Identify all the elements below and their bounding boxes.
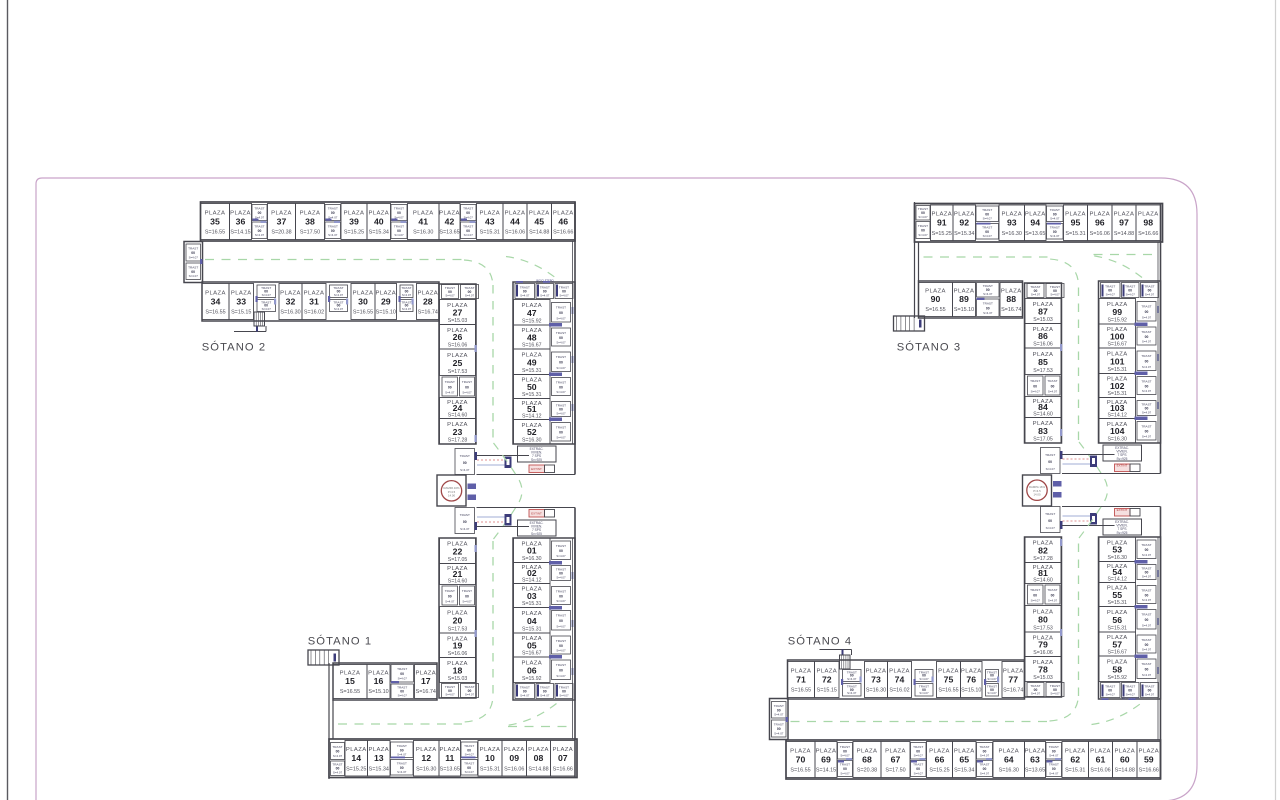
svg-text:EXTINT: EXTINT bbox=[1117, 464, 1128, 468]
svg-text:S=16.74: S=16.74 bbox=[416, 689, 436, 695]
svg-text:S=4.07: S=4.07 bbox=[556, 316, 566, 320]
svg-text:S=4.07: S=4.07 bbox=[465, 770, 475, 774]
svg-text:PLAZA: PLAZA bbox=[1138, 748, 1159, 754]
svg-text:S=4.07: S=4.07 bbox=[1142, 315, 1152, 319]
svg-text:TRAST: TRAST bbox=[1141, 662, 1151, 666]
svg-text:17: 17 bbox=[421, 676, 431, 686]
svg-text:S=4.07: S=4.07 bbox=[1050, 692, 1060, 696]
svg-text:S=4.07: S=4.07 bbox=[334, 293, 344, 297]
svg-text:S=4.07: S=4.07 bbox=[1046, 526, 1056, 530]
svg-text:00: 00 bbox=[1051, 593, 1055, 597]
svg-text:TRAST: TRAST bbox=[1141, 638, 1151, 642]
svg-text:PLAZA: PLAZA bbox=[417, 290, 438, 296]
svg-text:TRAST: TRAST bbox=[1141, 424, 1151, 428]
svg-text:81: 81 bbox=[1038, 568, 1048, 578]
svg-text:PLAZA: PLAZA bbox=[553, 210, 574, 216]
svg-text:23: 23 bbox=[453, 427, 463, 437]
svg-text:00: 00 bbox=[559, 549, 563, 553]
svg-text:99: 99 bbox=[1112, 307, 1122, 317]
svg-text:S=16.06: S=16.06 bbox=[505, 230, 525, 236]
svg-text:PLAZA: PLAZA bbox=[1025, 748, 1046, 754]
svg-text:93: 93 bbox=[1007, 218, 1017, 228]
svg-text:76: 76 bbox=[966, 674, 976, 684]
svg-text:S=17.05: S=17.05 bbox=[448, 557, 468, 563]
svg-text:S=15.25: S=15.25 bbox=[346, 766, 366, 772]
svg-text:59: 59 bbox=[1144, 754, 1154, 764]
svg-text:S=4.07: S=4.07 bbox=[1142, 673, 1152, 677]
svg-text:S=4.07: S=4.07 bbox=[556, 366, 566, 370]
svg-text:S=15.15: S=15.15 bbox=[231, 310, 251, 316]
svg-text:00: 00 bbox=[1048, 460, 1052, 464]
svg-text:S=4.07: S=4.07 bbox=[1142, 623, 1152, 627]
svg-text:S=16.02: S=16.02 bbox=[304, 310, 324, 316]
svg-text:S=16.67: S=16.67 bbox=[1107, 342, 1127, 348]
svg-text:SÓTANO 2: SÓTANO 2 bbox=[202, 341, 267, 354]
svg-text:S=4.07: S=4.07 bbox=[983, 292, 993, 296]
svg-text:S=4.07: S=4.07 bbox=[980, 754, 990, 758]
svg-text:S=15.34: S=15.34 bbox=[954, 768, 974, 774]
svg-text:00: 00 bbox=[465, 385, 469, 389]
svg-text:S=4.07: S=4.07 bbox=[983, 311, 993, 315]
svg-text:37: 37 bbox=[277, 216, 287, 226]
svg-text:65: 65 bbox=[959, 754, 969, 764]
svg-text:92: 92 bbox=[959, 218, 969, 228]
svg-text:00: 00 bbox=[1145, 384, 1149, 388]
svg-text:TRAST: TRAST bbox=[394, 207, 404, 211]
svg-text:TRAST: TRAST bbox=[556, 589, 566, 593]
svg-text:95: 95 bbox=[1071, 218, 1081, 228]
svg-text:26: 26 bbox=[453, 332, 463, 342]
svg-text:07: 07 bbox=[558, 753, 568, 763]
svg-text:08: 08 bbox=[534, 753, 544, 763]
svg-text:89: 89 bbox=[959, 294, 969, 304]
svg-text:TRAST: TRAST bbox=[460, 454, 470, 458]
svg-text:38: 38 bbox=[305, 216, 315, 226]
svg-text:TRAST: TRAST bbox=[840, 763, 850, 767]
svg-text:S=4.07: S=4.07 bbox=[1050, 216, 1060, 220]
svg-text:06: 06 bbox=[527, 665, 537, 675]
svg-text:S=20.38: S=20.38 bbox=[857, 768, 877, 774]
svg-text:S=14.15: S=14.15 bbox=[230, 230, 250, 236]
svg-text:TRAST: TRAST bbox=[254, 224, 264, 228]
svg-text:S=16.30: S=16.30 bbox=[999, 768, 1019, 774]
svg-text:100: 100 bbox=[1110, 331, 1125, 341]
svg-text:Sv=925: Sv=925 bbox=[1117, 457, 1128, 461]
svg-text:94: 94 bbox=[1030, 218, 1040, 228]
svg-text:S=17.53: S=17.53 bbox=[1033, 368, 1053, 374]
svg-text:S=16.74: S=16.74 bbox=[418, 310, 438, 316]
svg-text:S=14.12: S=14.12 bbox=[522, 577, 542, 583]
svg-text:S=16.74: S=16.74 bbox=[1003, 688, 1023, 694]
svg-text:22: 22 bbox=[453, 546, 463, 556]
svg-text:40: 40 bbox=[374, 216, 384, 226]
svg-text:88: 88 bbox=[1006, 294, 1016, 304]
svg-text:84: 84 bbox=[1038, 402, 1048, 412]
svg-text:TRAST: TRAST bbox=[188, 265, 198, 269]
svg-text:TRAST: TRAST bbox=[774, 704, 784, 708]
svg-text:PLAZA: PLAZA bbox=[205, 210, 226, 216]
svg-text:TRAST: TRAST bbox=[913, 763, 923, 767]
svg-text:S=4.07: S=4.07 bbox=[1142, 648, 1152, 652]
svg-text:S=15.92: S=15.92 bbox=[1107, 317, 1127, 323]
svg-text:TRAST: TRAST bbox=[254, 207, 264, 211]
svg-text:73: 73 bbox=[871, 674, 881, 684]
svg-text:TRAST: TRAST bbox=[460, 513, 470, 517]
svg-text:Sv=925: Sv=925 bbox=[531, 458, 542, 462]
svg-text:31: 31 bbox=[309, 296, 319, 306]
svg-text:20: 20 bbox=[453, 616, 463, 626]
svg-text:S=4.07: S=4.07 bbox=[1142, 434, 1152, 438]
svg-text:TRAST: TRAST bbox=[462, 589, 472, 593]
svg-text:00: 00 bbox=[559, 669, 563, 673]
svg-text:S=4.07: S=4.07 bbox=[559, 693, 569, 697]
svg-text:TRAST: TRAST bbox=[913, 745, 923, 749]
svg-text:S=15.31: S=15.31 bbox=[1065, 231, 1085, 237]
svg-text:S=17.28: S=17.28 bbox=[448, 437, 468, 443]
svg-text:S=4.07: S=4.07 bbox=[1050, 234, 1060, 238]
svg-text:S=4.07: S=4.07 bbox=[1126, 692, 1136, 696]
svg-text:S=4.07: S=4.07 bbox=[394, 233, 404, 237]
svg-text:S=4.07: S=4.07 bbox=[1142, 389, 1152, 393]
svg-text:00: 00 bbox=[1048, 519, 1052, 523]
svg-text:00: 00 bbox=[559, 361, 563, 365]
svg-text:34: 34 bbox=[211, 296, 221, 306]
svg-text:74: 74 bbox=[895, 674, 905, 684]
svg-text:S=4.07: S=4.07 bbox=[462, 390, 472, 394]
svg-text:PLAZA: PLAZA bbox=[280, 290, 301, 296]
svg-text:S=4.07: S=4.07 bbox=[333, 754, 343, 758]
svg-text:S=15.92: S=15.92 bbox=[1107, 675, 1127, 681]
svg-text:91: 91 bbox=[937, 218, 947, 228]
svg-text:62: 62 bbox=[1070, 754, 1080, 764]
svg-text:S=15.34: S=15.34 bbox=[369, 766, 389, 772]
svg-text:S=4.07: S=4.07 bbox=[1031, 389, 1041, 393]
svg-text:S=4.07: S=4.07 bbox=[462, 599, 472, 603]
svg-text:PLAZA: PLAZA bbox=[938, 668, 959, 674]
svg-text:S=14.15: S=14.15 bbox=[816, 768, 836, 774]
svg-text:S=4.07: S=4.07 bbox=[1048, 389, 1058, 393]
svg-text:00: 00 bbox=[191, 251, 195, 255]
svg-text:TRAST: TRAST bbox=[556, 639, 566, 643]
svg-text:S=16.55: S=16.55 bbox=[205, 230, 225, 236]
svg-text:S=4.07: S=4.07 bbox=[1145, 692, 1155, 696]
svg-text:PLAZA: PLAZA bbox=[954, 748, 975, 754]
svg-text:S=4.07: S=4.07 bbox=[918, 233, 928, 237]
svg-text:PLAZA: PLAZA bbox=[857, 748, 878, 754]
svg-text:S=4.07: S=4.07 bbox=[556, 674, 566, 678]
svg-text:TRAST: TRAST bbox=[394, 224, 404, 228]
svg-text:S=16.30: S=16.30 bbox=[866, 688, 886, 694]
svg-text:00: 00 bbox=[336, 750, 340, 754]
svg-text:S=17.50: S=17.50 bbox=[885, 768, 905, 774]
svg-text:TRAST: TRAST bbox=[188, 246, 198, 250]
svg-text:53: 53 bbox=[1112, 545, 1122, 555]
svg-text:104: 104 bbox=[1110, 426, 1125, 436]
svg-text:TRAST: TRAST bbox=[1141, 613, 1151, 617]
svg-text:13: 13 bbox=[374, 753, 384, 763]
svg-text:54: 54 bbox=[1112, 567, 1122, 577]
svg-text:14.00: 14.00 bbox=[1034, 493, 1041, 497]
svg-text:72: 72 bbox=[822, 674, 832, 684]
svg-text:S=16.06: S=16.06 bbox=[1033, 650, 1053, 656]
svg-text:S=14.88: S=14.88 bbox=[529, 230, 549, 236]
svg-text:68: 68 bbox=[862, 754, 872, 764]
svg-text:S=16.06: S=16.06 bbox=[1033, 342, 1053, 348]
svg-text:00: 00 bbox=[559, 385, 563, 389]
svg-text:S=4.07: S=4.07 bbox=[445, 390, 455, 394]
svg-text:TRAST: TRAST bbox=[445, 589, 455, 593]
svg-text:S=16.06: S=16.06 bbox=[448, 651, 468, 657]
svg-text:S=4.07: S=4.07 bbox=[914, 754, 924, 758]
svg-text:S=15.25: S=15.25 bbox=[932, 231, 952, 237]
svg-text:TRAST: TRAST bbox=[556, 544, 566, 548]
svg-text:S=17.53: S=17.53 bbox=[448, 369, 468, 375]
svg-text:PLAZA: PLAZA bbox=[413, 210, 434, 216]
svg-text:S=16.30: S=16.30 bbox=[522, 556, 542, 562]
svg-text:Sv=925: Sv=925 bbox=[1117, 531, 1128, 535]
svg-text:46: 46 bbox=[558, 216, 568, 226]
svg-text:S=14.60: S=14.60 bbox=[1033, 577, 1053, 583]
svg-text:S=4.07: S=4.07 bbox=[556, 411, 566, 415]
svg-text:78: 78 bbox=[1038, 665, 1048, 675]
svg-text:79: 79 bbox=[1038, 640, 1048, 650]
svg-text:SÓTANO 1: SÓTANO 1 bbox=[308, 635, 373, 648]
svg-text:15: 15 bbox=[345, 676, 355, 686]
svg-text:S=16.55: S=16.55 bbox=[790, 768, 810, 774]
svg-text:39: 39 bbox=[349, 216, 359, 226]
svg-text:00: 00 bbox=[559, 644, 563, 648]
svg-text:S=4.07: S=4.07 bbox=[1106, 692, 1116, 696]
svg-text:00: 00 bbox=[1145, 643, 1149, 647]
svg-text:49: 49 bbox=[527, 357, 537, 367]
svg-text:S=4.07: S=4.07 bbox=[847, 691, 857, 695]
svg-text:S=16.55: S=16.55 bbox=[791, 688, 811, 694]
svg-text:00: 00 bbox=[1145, 618, 1149, 622]
svg-text:00: 00 bbox=[463, 461, 467, 465]
svg-text:TRAST: TRAST bbox=[1141, 354, 1151, 358]
svg-text:67: 67 bbox=[891, 754, 901, 764]
svg-text:TRAST: TRAST bbox=[556, 614, 566, 618]
svg-text:S=15.10: S=15.10 bbox=[376, 310, 396, 316]
svg-text:TRAST: TRAST bbox=[328, 224, 338, 228]
svg-text:S=4.07: S=4.07 bbox=[189, 256, 199, 260]
svg-text:S=4.07: S=4.07 bbox=[1049, 771, 1059, 775]
svg-text:TRAST: TRAST bbox=[1030, 588, 1040, 592]
svg-text:TRAST: TRAST bbox=[397, 667, 407, 671]
svg-text:S=15.92: S=15.92 bbox=[522, 318, 542, 324]
svg-text:00: 00 bbox=[1145, 335, 1149, 339]
svg-text:TRAST: TRAST bbox=[1049, 763, 1059, 767]
svg-text:S=16.06: S=16.06 bbox=[1090, 231, 1110, 237]
svg-text:TRAST: TRAST bbox=[1141, 305, 1151, 309]
svg-text:S=15.25: S=15.25 bbox=[929, 768, 949, 774]
svg-text:TRAST: TRAST bbox=[1141, 543, 1151, 547]
svg-text:S=4.07: S=4.07 bbox=[1142, 410, 1152, 414]
svg-text:S=4.07: S=4.07 bbox=[559, 293, 569, 297]
svg-text:S=15.25: S=15.25 bbox=[344, 230, 364, 236]
svg-text:S=4.07: S=4.07 bbox=[445, 294, 455, 298]
svg-text:14: 14 bbox=[351, 753, 361, 763]
svg-text:S=14.60: S=14.60 bbox=[448, 578, 468, 584]
svg-text:EXTINT: EXTINT bbox=[531, 511, 542, 515]
svg-text:24: 24 bbox=[453, 403, 463, 413]
svg-text:TRAST: TRAST bbox=[556, 380, 566, 384]
svg-text:S=15.10: S=15.10 bbox=[954, 307, 974, 313]
svg-text:S=4.07: S=4.07 bbox=[465, 752, 475, 756]
svg-text:S=15.31: S=15.31 bbox=[480, 230, 500, 236]
svg-text:S=4.07: S=4.07 bbox=[1031, 293, 1041, 297]
svg-text:S=4.07: S=4.07 bbox=[1142, 574, 1152, 578]
svg-text:S=15.31: S=15.31 bbox=[1065, 768, 1085, 774]
svg-text:03: 03 bbox=[527, 591, 537, 601]
svg-text:30: 30 bbox=[358, 296, 368, 306]
svg-text:S=15.31: S=15.31 bbox=[480, 766, 500, 772]
svg-text:S=4.07: S=4.07 bbox=[556, 649, 566, 653]
svg-text:11: 11 bbox=[445, 753, 454, 763]
svg-text:PLAZA: PLAZA bbox=[929, 748, 950, 754]
svg-text:S=15.15: S=15.15 bbox=[817, 688, 837, 694]
svg-text:00: 00 bbox=[1145, 430, 1149, 434]
svg-text:02: 02 bbox=[527, 568, 537, 578]
svg-text:00: 00 bbox=[1145, 593, 1149, 597]
svg-text:35: 35 bbox=[210, 216, 220, 226]
svg-text:S=4.07: S=4.07 bbox=[983, 216, 993, 220]
svg-text:00: 00 bbox=[559, 594, 563, 598]
svg-text:45: 45 bbox=[534, 216, 544, 226]
svg-text:S=15.10: S=15.10 bbox=[368, 689, 388, 695]
svg-text:21: 21 bbox=[453, 569, 463, 579]
svg-text:S=15.03: S=15.03 bbox=[448, 318, 468, 324]
svg-text:S=16.74: S=16.74 bbox=[1001, 307, 1021, 313]
svg-text:00: 00 bbox=[1145, 548, 1149, 552]
svg-text:S=4.07: S=4.07 bbox=[1142, 553, 1152, 557]
svg-text:PLAZA: PLAZA bbox=[479, 210, 500, 216]
svg-text:S=15.31: S=15.31 bbox=[522, 601, 542, 607]
svg-text:S=4.07: S=4.07 bbox=[987, 691, 997, 695]
svg-text:103: 103 bbox=[1110, 403, 1125, 413]
svg-text:S=4.07: S=4.07 bbox=[774, 713, 784, 717]
svg-text:TRAST: TRAST bbox=[463, 207, 473, 211]
svg-text:S=14.88: S=14.88 bbox=[1115, 768, 1135, 774]
svg-text:58: 58 bbox=[1112, 664, 1122, 674]
svg-text:S=4.07: S=4.07 bbox=[1048, 598, 1058, 602]
svg-text:S=4.07: S=4.07 bbox=[397, 770, 407, 774]
svg-text:00: 00 bbox=[463, 520, 467, 524]
svg-text:102: 102 bbox=[1110, 381, 1125, 391]
svg-text:TRAST: TRAST bbox=[979, 745, 989, 749]
svg-text:S=16.67: S=16.67 bbox=[522, 651, 542, 657]
svg-text:S=4.07: S=4.07 bbox=[556, 435, 566, 439]
svg-text:S=15.31: S=15.31 bbox=[522, 392, 542, 398]
svg-text:S=4.07: S=4.07 bbox=[520, 693, 530, 697]
svg-text:TRAST: TRAST bbox=[556, 306, 566, 310]
svg-text:TRAST: TRAST bbox=[462, 380, 472, 384]
svg-text:60: 60 bbox=[1120, 754, 1130, 764]
svg-text:S=4.07: S=4.07 bbox=[1050, 293, 1060, 297]
svg-text:TRAST: TRAST bbox=[1045, 512, 1055, 516]
svg-text:S=16.55: S=16.55 bbox=[938, 688, 958, 694]
svg-text:00: 00 bbox=[448, 385, 452, 389]
svg-text:S=4.07: S=4.07 bbox=[460, 527, 470, 531]
svg-text:PLAZA: PLAZA bbox=[271, 210, 292, 216]
svg-text:S=16.66: S=16.66 bbox=[553, 766, 573, 772]
svg-text:71: 71 bbox=[796, 674, 806, 684]
svg-text:S=16.30: S=16.30 bbox=[416, 766, 436, 772]
svg-text:10: 10 bbox=[485, 753, 495, 763]
svg-text:S=16.66: S=16.66 bbox=[553, 230, 573, 236]
svg-text:S=15.03: S=15.03 bbox=[1033, 317, 1053, 323]
svg-text:41: 41 bbox=[418, 216, 428, 226]
svg-text:S=16.66: S=16.66 bbox=[1138, 231, 1158, 237]
svg-text:S=16.67: S=16.67 bbox=[522, 343, 542, 349]
svg-text:S=4.07: S=4.07 bbox=[328, 233, 338, 237]
svg-text:TRAST: TRAST bbox=[445, 380, 455, 384]
svg-text:28: 28 bbox=[423, 296, 433, 306]
svg-text:S=15.31: S=15.31 bbox=[522, 368, 542, 374]
svg-text:S=4.07: S=4.07 bbox=[1031, 692, 1041, 696]
svg-text:S=15.31: S=15.31 bbox=[1107, 600, 1127, 606]
svg-text:S=4.07: S=4.07 bbox=[520, 293, 530, 297]
svg-text:77: 77 bbox=[1008, 674, 1018, 684]
svg-text:S=4.07: S=4.07 bbox=[402, 293, 412, 297]
svg-text:S=4.07: S=4.07 bbox=[840, 754, 850, 758]
svg-text:43: 43 bbox=[485, 216, 495, 226]
svg-text:S=17.50: S=17.50 bbox=[300, 230, 320, 236]
svg-text:29: 29 bbox=[381, 296, 391, 306]
svg-text:TRAST: TRAST bbox=[1049, 745, 1059, 749]
svg-text:PLAZA: PLAZA bbox=[304, 290, 325, 296]
svg-text:S=13.65: S=13.65 bbox=[439, 230, 459, 236]
svg-text:S=4.07: S=4.07 bbox=[1145, 292, 1155, 296]
svg-text:TRAST: TRAST bbox=[1047, 379, 1057, 383]
svg-text:42: 42 bbox=[445, 216, 455, 226]
svg-text:TRAST: TRAST bbox=[1141, 379, 1151, 383]
svg-text:S=16.30: S=16.30 bbox=[1002, 231, 1022, 237]
svg-text:S=4.07: S=4.07 bbox=[1142, 365, 1152, 369]
svg-text:S=15.34: S=15.34 bbox=[369, 230, 389, 236]
svg-text:TRAST: TRAST bbox=[1141, 330, 1151, 334]
svg-text:00: 00 bbox=[1033, 384, 1037, 388]
svg-text:S=14.12: S=14.12 bbox=[522, 413, 542, 419]
svg-text:S=4.07: S=4.07 bbox=[556, 390, 566, 394]
svg-text:09: 09 bbox=[509, 753, 519, 763]
svg-text:S=16.06: S=16.06 bbox=[504, 766, 524, 772]
svg-text:EXTINT: EXTINT bbox=[531, 467, 542, 471]
svg-text:16: 16 bbox=[374, 676, 384, 686]
svg-text:00: 00 bbox=[448, 594, 452, 598]
svg-text:S=4.07: S=4.07 bbox=[445, 599, 455, 603]
svg-text:S=4.07: S=4.07 bbox=[556, 599, 566, 603]
svg-text:TRAST: TRAST bbox=[1045, 453, 1055, 457]
svg-text:S=14.12: S=14.12 bbox=[1107, 412, 1127, 418]
svg-text:TRAST: TRAST bbox=[328, 207, 338, 211]
svg-text:96: 96 bbox=[1095, 218, 1105, 228]
svg-text:32: 32 bbox=[286, 296, 296, 306]
svg-text:S=4.07: S=4.07 bbox=[333, 771, 343, 775]
svg-text:PLAZA: PLAZA bbox=[885, 748, 906, 754]
svg-text:PLAZA: PLAZA bbox=[375, 290, 396, 296]
svg-text:S=16.02: S=16.02 bbox=[889, 688, 909, 694]
svg-text:TRAST: TRAST bbox=[979, 763, 989, 767]
svg-text:S=4.07: S=4.07 bbox=[914, 771, 924, 775]
svg-text:S=17.28: S=17.28 bbox=[1033, 556, 1053, 562]
svg-text:PLAZA: PLAZA bbox=[439, 210, 460, 216]
svg-text:00: 00 bbox=[1051, 384, 1055, 388]
svg-text:00: 00 bbox=[986, 307, 990, 311]
svg-text:S=14.88: S=14.88 bbox=[1114, 231, 1134, 237]
svg-text:Sv=925: Sv=925 bbox=[531, 532, 542, 536]
svg-text:98: 98 bbox=[1143, 218, 1153, 228]
